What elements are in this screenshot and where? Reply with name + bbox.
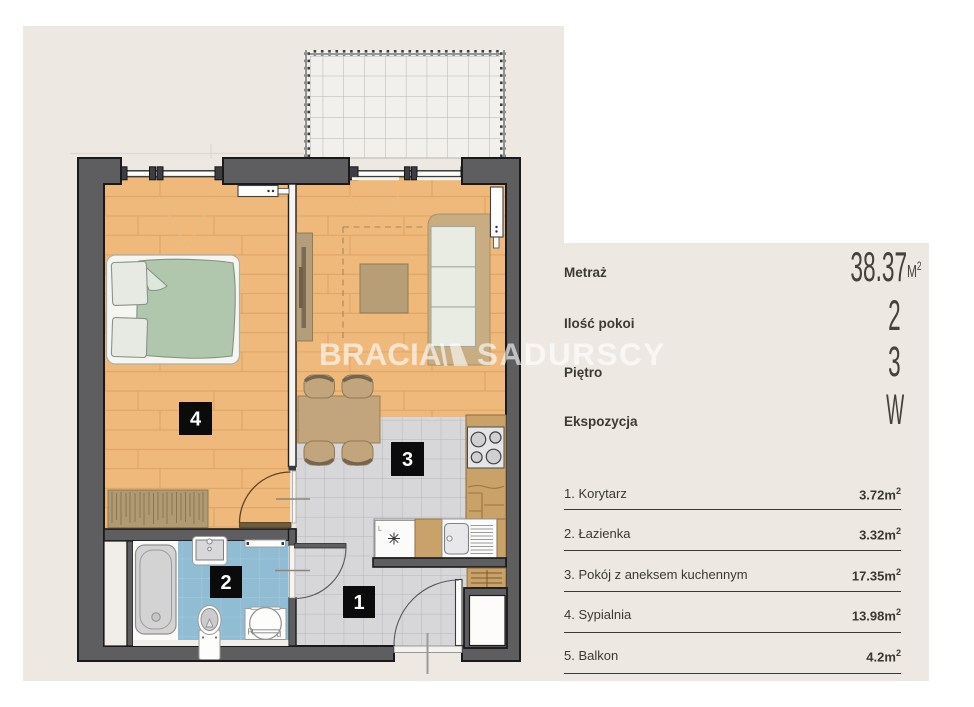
- svg-text:1: 1: [353, 592, 364, 614]
- svg-text:4: 4: [190, 409, 202, 431]
- svg-text:3: 3: [402, 449, 413, 471]
- svg-text:L: L: [378, 526, 382, 533]
- svg-text:2: 2: [220, 572, 231, 594]
- svg-text:d: d: [277, 629, 282, 639]
- svg-text:R: R: [248, 627, 254, 637]
